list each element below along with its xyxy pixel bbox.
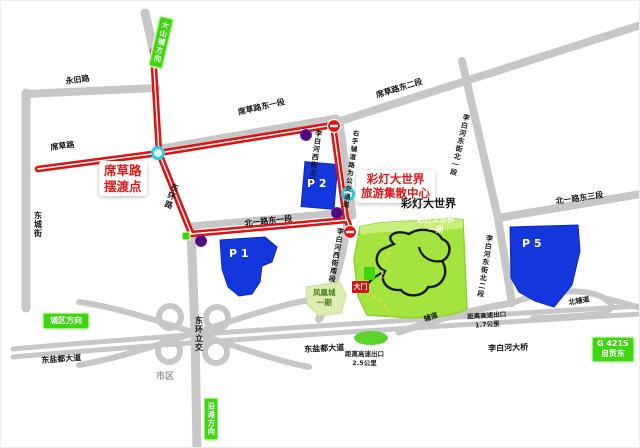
map-graphics (1, 1, 640, 448)
sign-yantan: 沿滩方向 (204, 398, 218, 440)
road-label-donghuan-interchange: 东环立交 (194, 316, 203, 352)
map: 永旧路 东城街 席草路 席草路东一段 席草路东二段 东环路 北一路东一段 李白河… (0, 0, 640, 448)
road-label-shiqu: 市区 (156, 372, 174, 383)
label-fenghuang: 凤凰城 一期 (313, 288, 336, 308)
corner-marker-green (182, 232, 190, 240)
road-label-dongchengjie: 东城街 (33, 211, 42, 238)
sign-chengqu: 城区方向 (43, 313, 89, 329)
parking-p1-shape (220, 237, 277, 296)
label-lantern-world: 彩灯大世界 (401, 195, 456, 211)
label-park-phase1: 彩灯大世界 一期 (417, 215, 455, 235)
gate-side-marker-green (364, 267, 375, 280)
parking-label-p2: P 2 (307, 177, 327, 190)
parking-p5-shape (510, 225, 580, 307)
parking-label-p1: P 1 (229, 247, 249, 260)
greenway-island (354, 331, 388, 345)
sign-g4215: G 4215 自贡东 (592, 337, 634, 362)
annotation-ferry-point: 席草路 摆渡点 (99, 161, 147, 196)
park-gate: 大门 (352, 281, 369, 293)
no-entry-icon (328, 120, 341, 133)
note-exit-1-7: 距离高速出口 1.7公里 (467, 310, 507, 330)
ferry-stop-xicao (153, 148, 164, 159)
no-entry-icon (344, 226, 357, 239)
road-label-libaihe-bridge: 李白河大桥 (488, 343, 528, 354)
parking-label-p5: P 5 (522, 237, 542, 250)
note-exit-2-5: 距离高速出口 2.5公里 (345, 350, 384, 368)
